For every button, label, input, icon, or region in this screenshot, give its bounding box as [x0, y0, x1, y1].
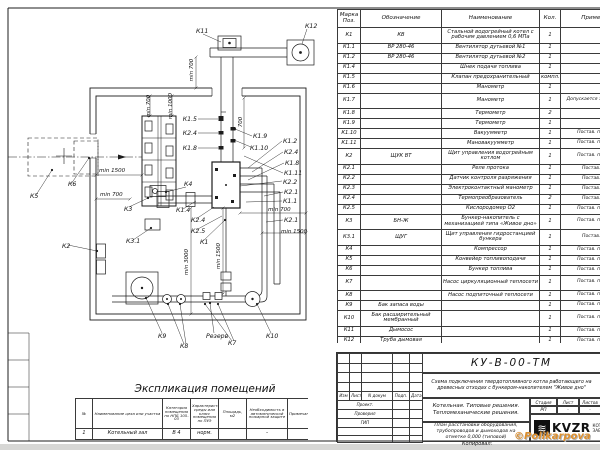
spec-col-header: Кол.	[540, 10, 561, 28]
spec-row: К2.3Электроконтактный манометр1Постав. с…	[338, 184, 600, 194]
drawing-label: min 700	[146, 94, 152, 117]
rev-col-data: Дата	[410, 392, 423, 401]
spec-row: К1.11Мановакуумметр1Постав. по соглас.	[338, 139, 600, 149]
drawing-label: К12	[305, 23, 317, 30]
drawing-label: К6	[68, 181, 76, 188]
spec-row: К6Бункер топлива1Постав. по соглас.	[338, 265, 600, 275]
spec-row: К1.4Шнек подачи топлива1	[338, 63, 600, 73]
drawing-label: min 700	[189, 58, 195, 81]
tank-k9	[126, 272, 158, 304]
kopiroval-label: Копировал:	[462, 441, 492, 447]
spec-col-header: Примечание	[561, 10, 600, 28]
stage-value: РП	[530, 406, 557, 414]
room-col-header: Примечания	[288, 399, 309, 429]
spec-row: К4Компрессор1Постав. по соглас.	[338, 245, 600, 255]
rev-col-podp: Подп.	[393, 392, 410, 401]
room-header-row: №Наименование цеха или участкаКатегория …	[76, 399, 309, 429]
drawing-label: min 700	[100, 192, 123, 198]
doc-description: Схема подключения твердотопливного котла…	[422, 373, 600, 398]
revision-table: Изм Лист N докум Подп. Дата Проект. Пров…	[337, 353, 423, 443]
drawing-label: К2	[62, 243, 70, 250]
listov-header: Листов	[579, 398, 600, 406]
drawing-label: К3	[124, 206, 132, 213]
spec-row: К1КВСтальной водогрейный котел с рабочим…	[338, 28, 600, 44]
spec-row: К1.9Термометр1	[338, 119, 600, 129]
drawing-label: К9	[158, 333, 166, 340]
list-value: -	[557, 406, 579, 414]
role-proekt: Проект.	[338, 401, 393, 410]
spec-row: К2ЩУК ВТЩит управления водогрейным котло…	[338, 149, 600, 165]
listov-value: -	[579, 406, 600, 414]
spec-table: Марка Поз.ОбозначениеНаименованиеКол.При…	[337, 9, 600, 343]
spec-col-header: Обозначение	[361, 10, 442, 28]
drawing-label: 700	[238, 116, 244, 127]
spec-col-header: Марка Поз.	[338, 10, 361, 28]
drawing-label: min 700	[268, 207, 291, 213]
spec-row: К1.10Вакуумметр1Постав. по соглас.	[338, 129, 600, 139]
spec-row: К12Труба дымовая1Постав. по соглас.	[338, 336, 600, 343]
flue-and-chimney	[210, 36, 314, 162]
drawing-label: К2.2	[283, 179, 297, 186]
spec-row: К5Конвейер топливоподачи1Постав. по согл…	[338, 255, 600, 265]
spec-row: К7Насос циркуляционный теплосети1Постав.…	[338, 275, 600, 291]
spec-row: К3БН-ЖБункер-накопитель с механизацией т…	[338, 214, 600, 230]
spec-table-wrap: Марка Поз.ОбозначениеНаименованиеКол.При…	[337, 9, 600, 343]
rev-col-izm: Изм	[338, 392, 350, 401]
drawing-label: К2.4	[183, 130, 197, 137]
spec-header-row: Марка Поз.ОбозначениеНаименованиеКол.При…	[338, 10, 600, 28]
room-row: 1Котельный залВ 4норм.-	[76, 429, 309, 440]
room-table-title: Экспликация помещений	[95, 383, 315, 395]
drawing-label: К1.5	[183, 116, 197, 123]
spec-row: К9Бак запаса воды1Постав. по соглас.	[338, 301, 600, 311]
spec-row: К1.8Термометр2	[338, 109, 600, 119]
boiler-k1	[212, 162, 240, 208]
drawing-label: К2.4	[284, 149, 298, 156]
drawing-label: К7	[228, 340, 236, 347]
drawing-label: К1.8	[285, 160, 299, 167]
stage-header: Стадия	[530, 398, 557, 406]
drawing-label: К10	[266, 333, 278, 340]
role-proveril: Проверил	[338, 410, 393, 419]
drawing-label: min 3000	[184, 248, 190, 275]
spec-row: К11Дымосос1Постав. по соглас.	[338, 326, 600, 336]
logo-subline-2: ЗАВОД Р	[593, 428, 600, 433]
drawing-label: К1	[200, 239, 208, 246]
drawing-label: К4	[184, 181, 192, 188]
drawing-label: min 1000	[168, 92, 174, 119]
room-col-header: Наименование цеха или участка	[93, 399, 163, 429]
spec-row: К2.5Кислородомер О21Постав. по соглас.	[338, 204, 600, 214]
role-gip: ГИП	[338, 419, 393, 428]
spec-row: К2.4Термопреобразователь2Постав. с ЩУК	[338, 194, 600, 204]
drawing-label: К2.5	[191, 228, 205, 235]
list-header: Лист	[557, 398, 579, 406]
dimension-lines	[95, 56, 308, 316]
drawing-label: Резерв	[206, 333, 229, 340]
drawing-label: К8	[180, 343, 188, 350]
rev-col-ndoc: N докум	[362, 392, 393, 401]
drawing-label: К2.1	[284, 217, 298, 224]
drawing-label: К1.2	[283, 138, 297, 145]
drawing-label: К1.8	[183, 145, 197, 152]
drawing-label: К5	[30, 193, 38, 200]
drawing-sheet: К11К12К1.5К2.4К1.8min 1500min 700К3К3.1К…	[0, 0, 600, 444]
room-table-wrap: №Наименование цеха или участкаКатегория …	[75, 398, 308, 440]
spec-row: К1.5Клапан предохранительныйкомпл.	[338, 73, 600, 83]
drawing-label: min 1500	[99, 168, 126, 174]
drawing-label: К1.11	[284, 170, 302, 177]
spec-row: К8Насос подпиточный теплосети1Постав. по…	[338, 291, 600, 301]
drawing-label: К1.1	[283, 198, 297, 205]
spec-row: К3.1ЩУГЩит управления гидростанцией бунк…	[338, 230, 600, 246]
title-block: Изм Лист N докум Подп. Дата Проект. Пров…	[336, 352, 600, 442]
drawing-label: К1.9	[253, 133, 267, 140]
room-col-header: Площадь, м2	[219, 399, 247, 429]
spec-row: К1.7Манометр1Допускается зам. поз. К2.3	[338, 93, 600, 109]
drawing-label: min 1500	[216, 242, 222, 269]
doc-org: Котельная. Типовые решения. Тепломеханич…	[422, 398, 530, 422]
room-col-header: Необходимость в автоматической пожарной …	[247, 399, 288, 429]
rev-col-list: Лист	[350, 392, 362, 401]
drawing-label: min 1500	[281, 229, 308, 235]
room-col-header: Характеристика среды или класс помещения…	[191, 399, 219, 429]
drawing-label: К1.10	[250, 145, 268, 152]
room-col-header: №	[76, 399, 93, 429]
spec-row: К1.2ВР 280-46Вентилятор дутьевой №21	[338, 53, 600, 63]
room-table: №Наименование цеха или участкаКатегория …	[75, 398, 308, 440]
spec-row: К2.1Реле протока1Постав. с ЩУК	[338, 164, 600, 174]
bunker-k3	[142, 116, 176, 206]
drawing-label: К1.4	[176, 207, 190, 214]
watermark: ©Polikarpova	[514, 431, 591, 442]
drawing-label: К2.4	[191, 217, 205, 224]
doc-code: КУ-В-00-ТМ	[422, 353, 600, 373]
spec-row: К1.6Манометр1	[338, 83, 600, 93]
spec-row: К10Бак расширительный мембранный1Постав.…	[338, 311, 600, 327]
leader-lines	[36, 29, 307, 344]
drawing-label: К11	[196, 28, 208, 35]
drawing-label: К3.1	[126, 238, 140, 245]
spec-col-header: Наименование	[442, 10, 540, 28]
room-col-header: Категория помещения по НПБ 105-03	[163, 399, 191, 429]
drawing-label: К2.1	[284, 189, 298, 196]
spec-row: К1.1ВР 280-46Вентилятор дутьевой №11	[338, 43, 600, 53]
spec-row: К2.2Датчик контроля разряжения1Постав. с…	[338, 174, 600, 184]
